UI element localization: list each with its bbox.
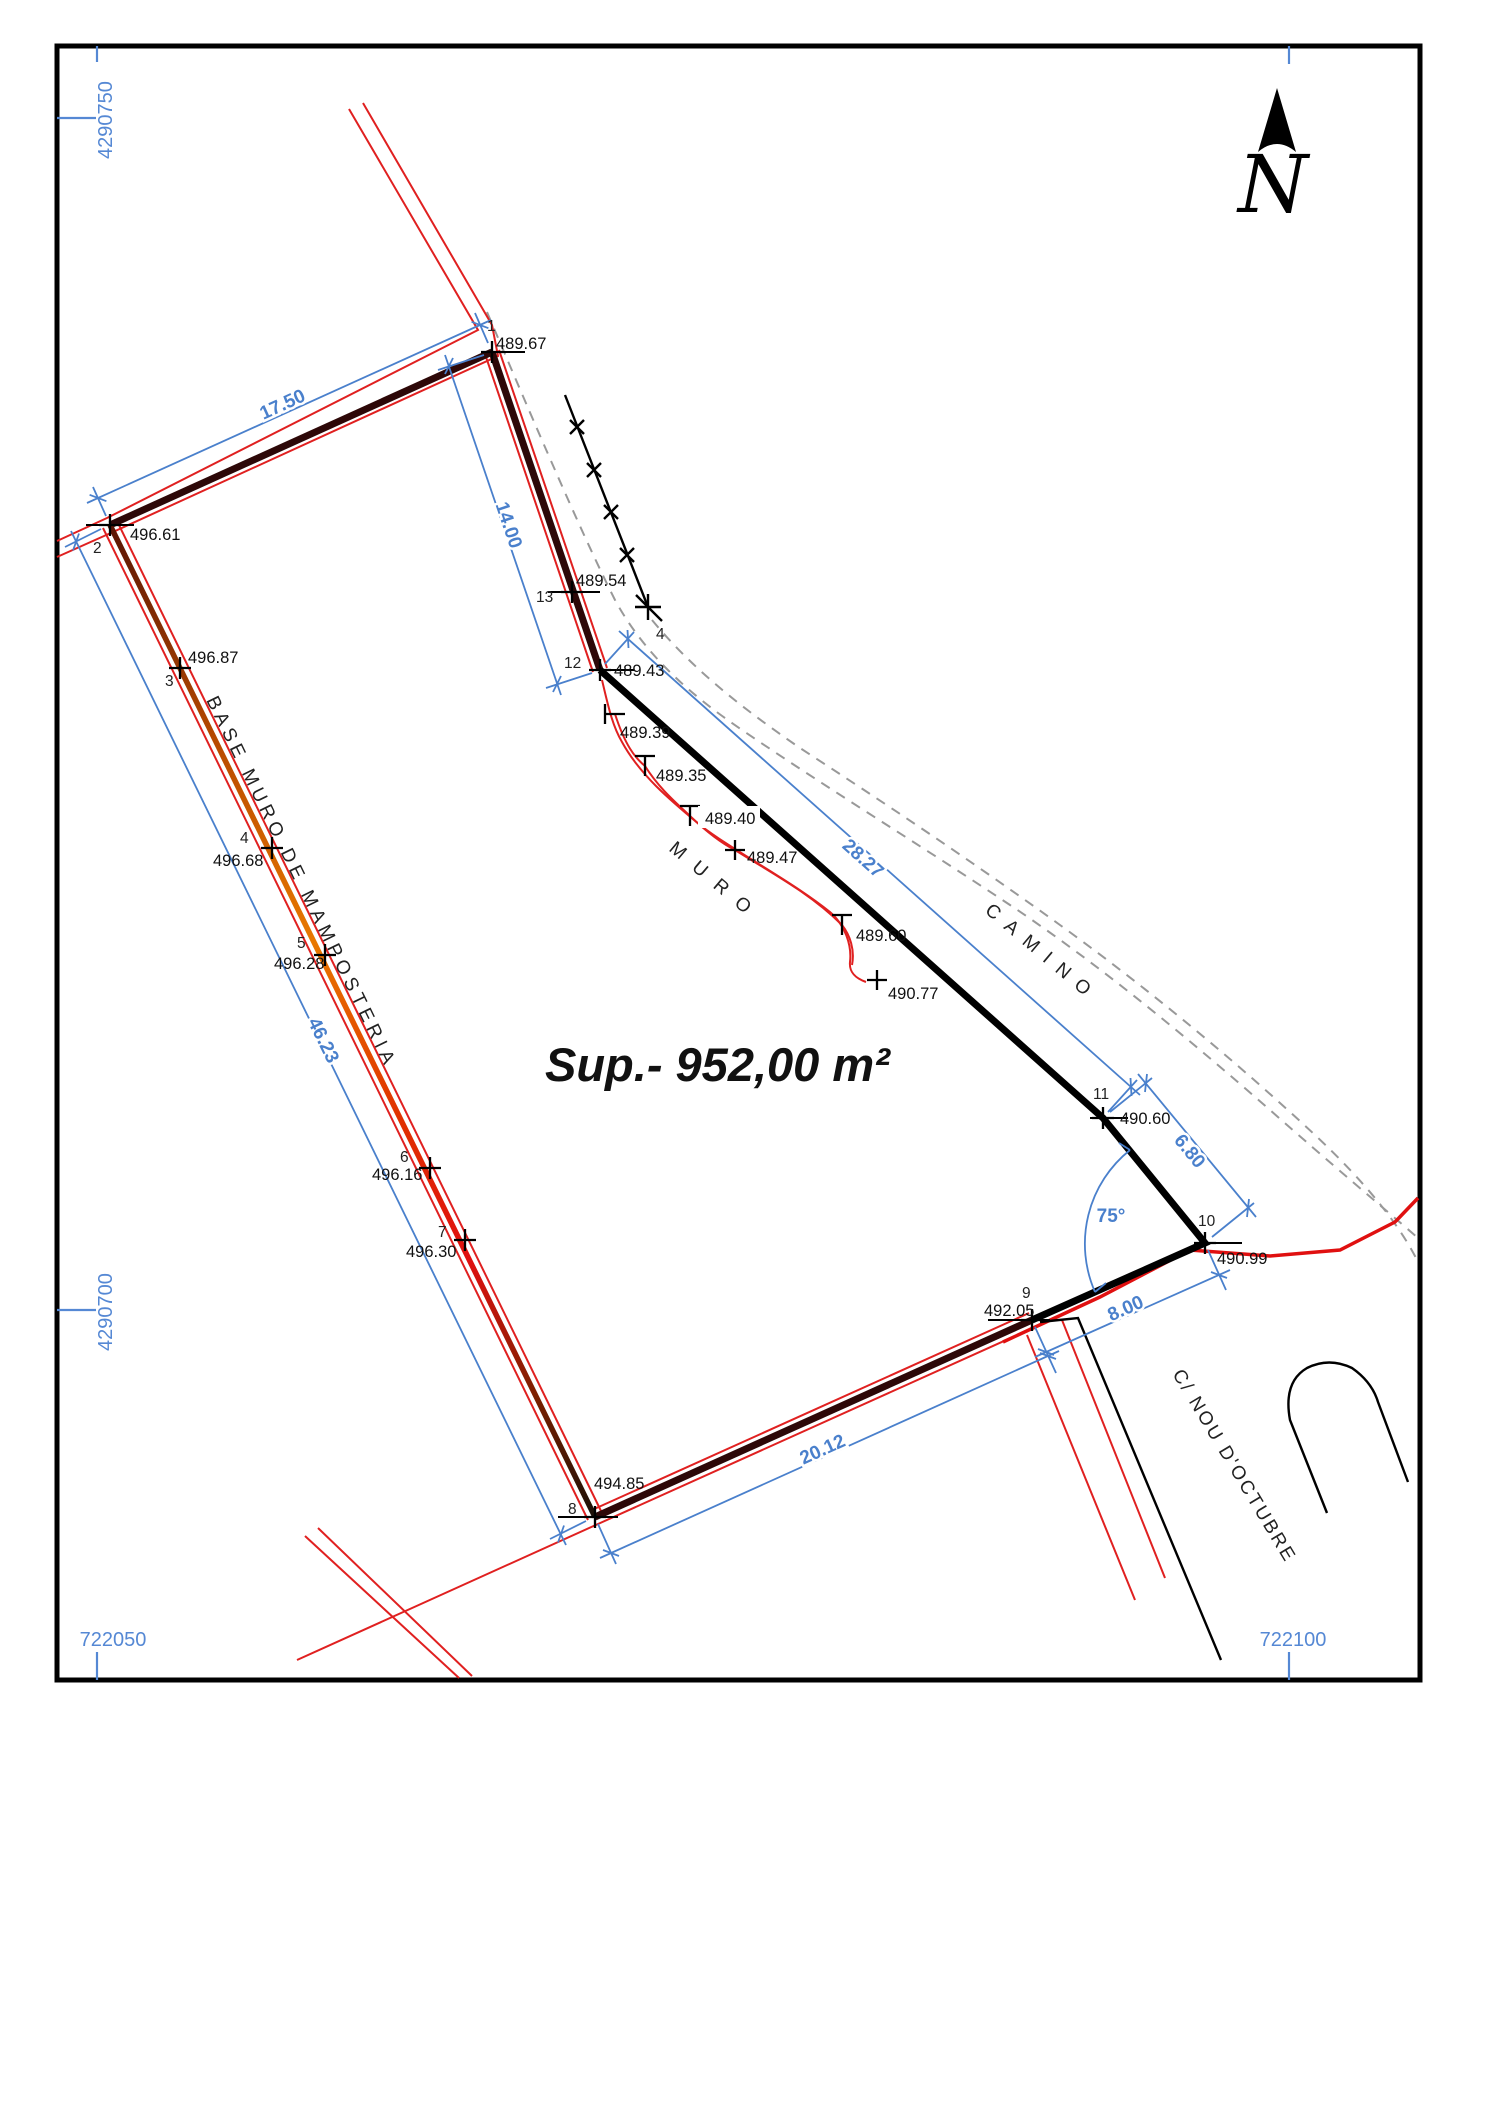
point-12-number: 12 [564,655,581,672]
spot-elev-490-77: 490.77 [888,985,938,1003]
point-8-elev: 494.85 [594,1475,644,1493]
point-13-elev: 489.54 [576,572,626,590]
fence-point-number: 4 [656,626,665,643]
spot-elev-489-35: 489.35 [656,767,706,785]
area-label: Sup.- 952,00 m² [545,1038,891,1091]
point-5-elev: 496.28 [274,955,324,973]
north-letter: N [1236,138,1311,231]
point-4-number: 4 [240,830,249,847]
grid-label-easting-right: 722100 [1260,1629,1327,1651]
point-2-elev: 496.61 [130,526,180,544]
spot-elev-489-60: 489.60 [856,927,906,945]
point-3-elev: 496.87 [188,649,238,667]
plan-drawing: 4290750 4290700 722050 722100 [0,0,1500,2123]
spot-elev-489-40: 489.40 [705,810,755,828]
point-6-number: 6 [400,1149,409,1166]
point-10-number: 10 [1198,1213,1216,1230]
point-11-number: 11 [1093,1086,1109,1103]
point-1-elev: 489.67 [496,335,546,353]
grid-label-easting-left: 722050 [80,1629,147,1651]
point-1-number: 1 [487,318,496,335]
survey-plan-page: 4290750 4290700 722050 722100 [0,0,1500,2123]
grid-label-northing-bottom: 4290700 [95,1273,117,1351]
point-10-elev: 490.99 [1217,1250,1267,1268]
point-5-number: 5 [297,935,306,952]
point-9-number: 9 [1022,1285,1031,1302]
spot-elev-489-39: 489.39 [620,724,670,742]
spot-elev-489-47: 489.47 [747,849,797,867]
point-8-number: 8 [568,1501,577,1518]
point-2-number: 2 [93,540,102,557]
point-12-elev: 489.43 [614,662,664,680]
angle-label-75: 75° [1097,1206,1126,1227]
point-9-elev: 492.05 [984,1302,1034,1320]
point-7-elev: 496.30 [406,1243,456,1261]
point-7-number: 7 [438,1224,447,1241]
point-11-elev: 490.60 [1120,1110,1170,1128]
point-13-number: 13 [536,589,553,606]
grid-label-northing-top: 4290750 [95,81,117,159]
point-3-number: 3 [165,673,174,690]
point-4-elev: 496.68 [213,852,263,870]
point-6-elev: 496.16 [372,1166,422,1184]
